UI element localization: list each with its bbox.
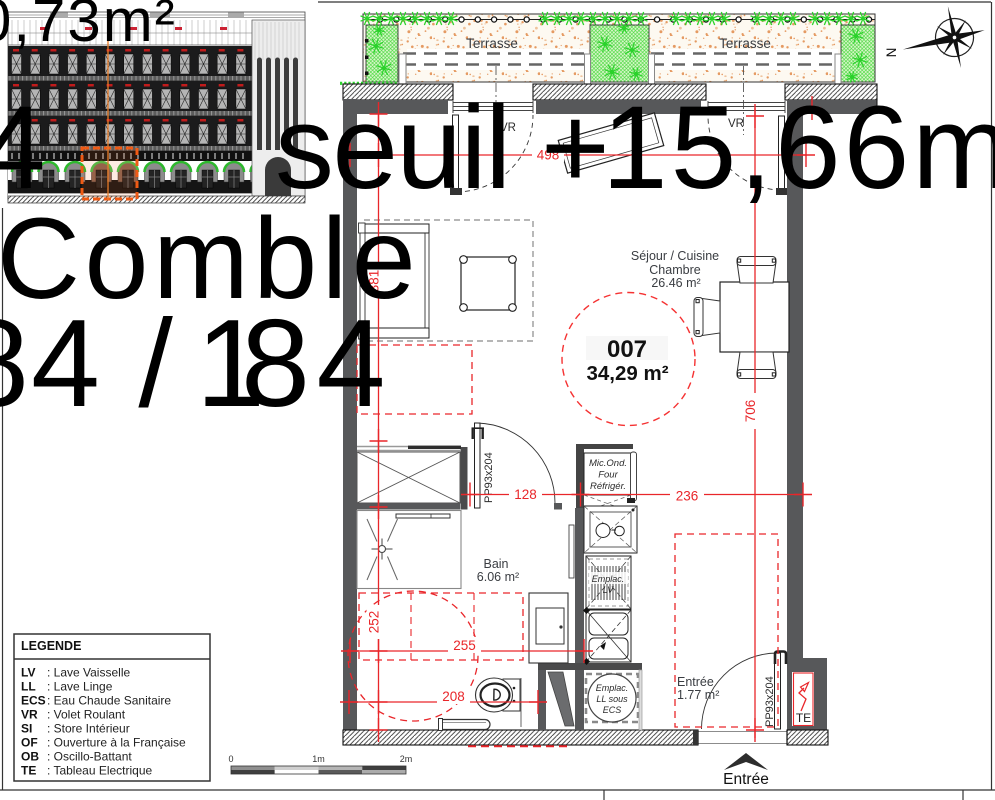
svg-text:ECS: ECS [603,705,622,715]
svg-text:706: 706 [743,400,758,423]
svg-text:Entrée: Entrée [723,771,769,788]
svg-text:1m: 1m [312,754,325,764]
svg-text:LL sous: LL sous [596,694,628,704]
svg-text:2m: 2m [400,754,413,764]
svg-text:Chambre: Chambre [649,263,700,277]
svg-text:Four: Four [598,470,618,481]
svg-text:255: 255 [453,638,476,653]
svg-text:: Lave Linge: : Lave Linge [47,680,113,694]
svg-text:VR: VR [21,708,38,722]
svg-text:Emplac.: Emplac. [592,574,625,584]
svg-text:Emplac.: Emplac. [596,683,629,693]
svg-text:: Tableau Electrique: : Tableau Electrique [47,764,153,778]
svg-text:Entrée: Entrée [677,675,714,689]
svg-text:: Store Intérieur: : Store Intérieur [47,722,130,736]
svg-text:15,66m: 15,66m [602,82,995,214]
svg-text:128: 128 [514,487,537,502]
svg-text:: Oscillo-Battant: : Oscillo-Battant [47,750,132,764]
svg-text:LV: LV [603,585,615,595]
svg-text:: Lave Vaisselle: : Lave Vaisselle [47,666,130,680]
svg-text:6.06 m²: 6.06 m² [477,570,519,584]
svg-text:Séjour / Cuisine: Séjour / Cuisine [631,249,719,263]
svg-text:TE: TE [796,711,811,725]
svg-text:: Ouverture à la Française: : Ouverture à la Française [47,736,186,750]
svg-text:Bain: Bain [483,557,508,571]
svg-text:84 /: 84 / [0,295,175,433]
svg-text:: Eau Chaude Sanitaire: : Eau Chaude Sanitaire [47,694,171,708]
svg-text:TE: TE [21,764,36,778]
svg-text:208: 208 [442,689,465,704]
svg-text:84: 84 [241,295,392,433]
svg-text:0,73m²: 0,73m² [0,0,177,54]
svg-text:252: 252 [367,611,382,634]
svg-text:: Volet Roulant: : Volet Roulant [47,708,126,722]
svg-text:PP93x204: PP93x204 [764,676,776,727]
svg-text:Terrasse: Terrasse [466,36,518,51]
svg-text:34,29 m²: 34,29 m² [586,362,668,385]
svg-text:Terrasse: Terrasse [719,36,771,51]
svg-text:Réfrigér.: Réfrigér. [590,481,626,492]
svg-text:LL: LL [21,680,36,694]
svg-text:Mic.Ond.: Mic.Ond. [589,458,627,469]
svg-text:26.46 m²: 26.46 m² [651,276,700,290]
svg-text:236: 236 [676,489,699,504]
svg-text:OF: OF [21,736,38,750]
svg-text:007: 007 [607,336,647,363]
svg-text:N: N [884,48,899,58]
svg-text:SI: SI [21,722,32,736]
svg-text:0: 0 [228,754,233,764]
svg-text:LV: LV [21,666,35,680]
svg-text:ECS: ECS [21,694,46,708]
svg-text:LEGENDE: LEGENDE [21,639,81,653]
svg-text:OB: OB [21,750,39,764]
svg-text:1.77 m²: 1.77 m² [677,688,719,702]
svg-text:PP93x204: PP93x204 [483,452,495,503]
